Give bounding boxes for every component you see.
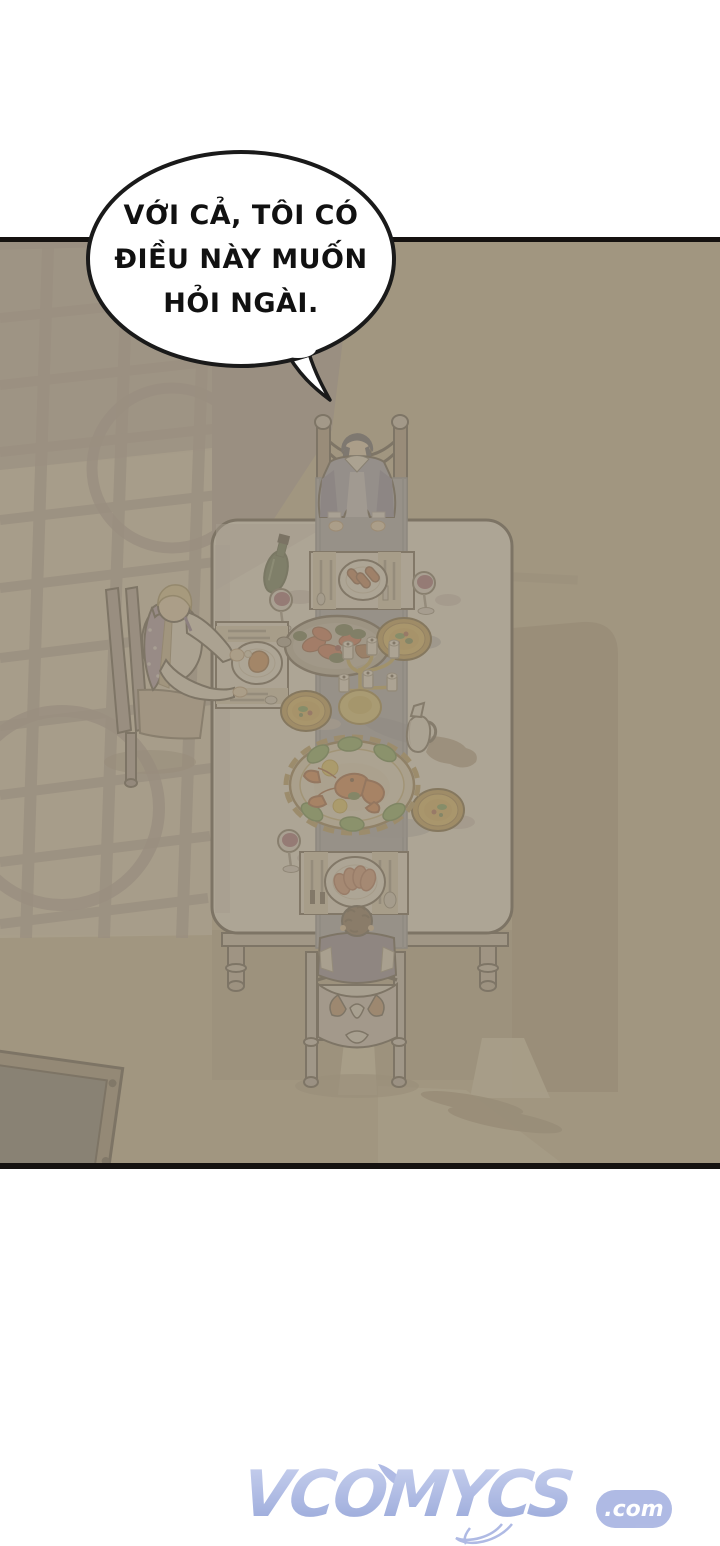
comic-page: VỚI CẢ, TÔI CÓ ĐIỀU NÀY MUỐN HỎI NGÀI. V… — [0, 0, 720, 1546]
speech-line-2: ĐIỀU NÀY MUỐN — [114, 239, 367, 275]
speech-line-3: HỎI NGÀI. — [163, 283, 318, 319]
comic-panel-illustration: VỚI CẢ, TÔI CÓ ĐIỀU NÀY MUỐN HỎI NGÀI. V… — [0, 0, 720, 1546]
watermark-suffix: .com — [604, 1497, 663, 1522]
watermark-text: VCOMYCS — [239, 1457, 575, 1532]
floor-grain-dark — [0, 240, 720, 1166]
watermark: VCOMYCS .com — [239, 1457, 672, 1544]
speech-line-1: VỚI CẢ, TÔI CÓ — [124, 196, 359, 231]
panel-bottom-border — [0, 1163, 720, 1169]
